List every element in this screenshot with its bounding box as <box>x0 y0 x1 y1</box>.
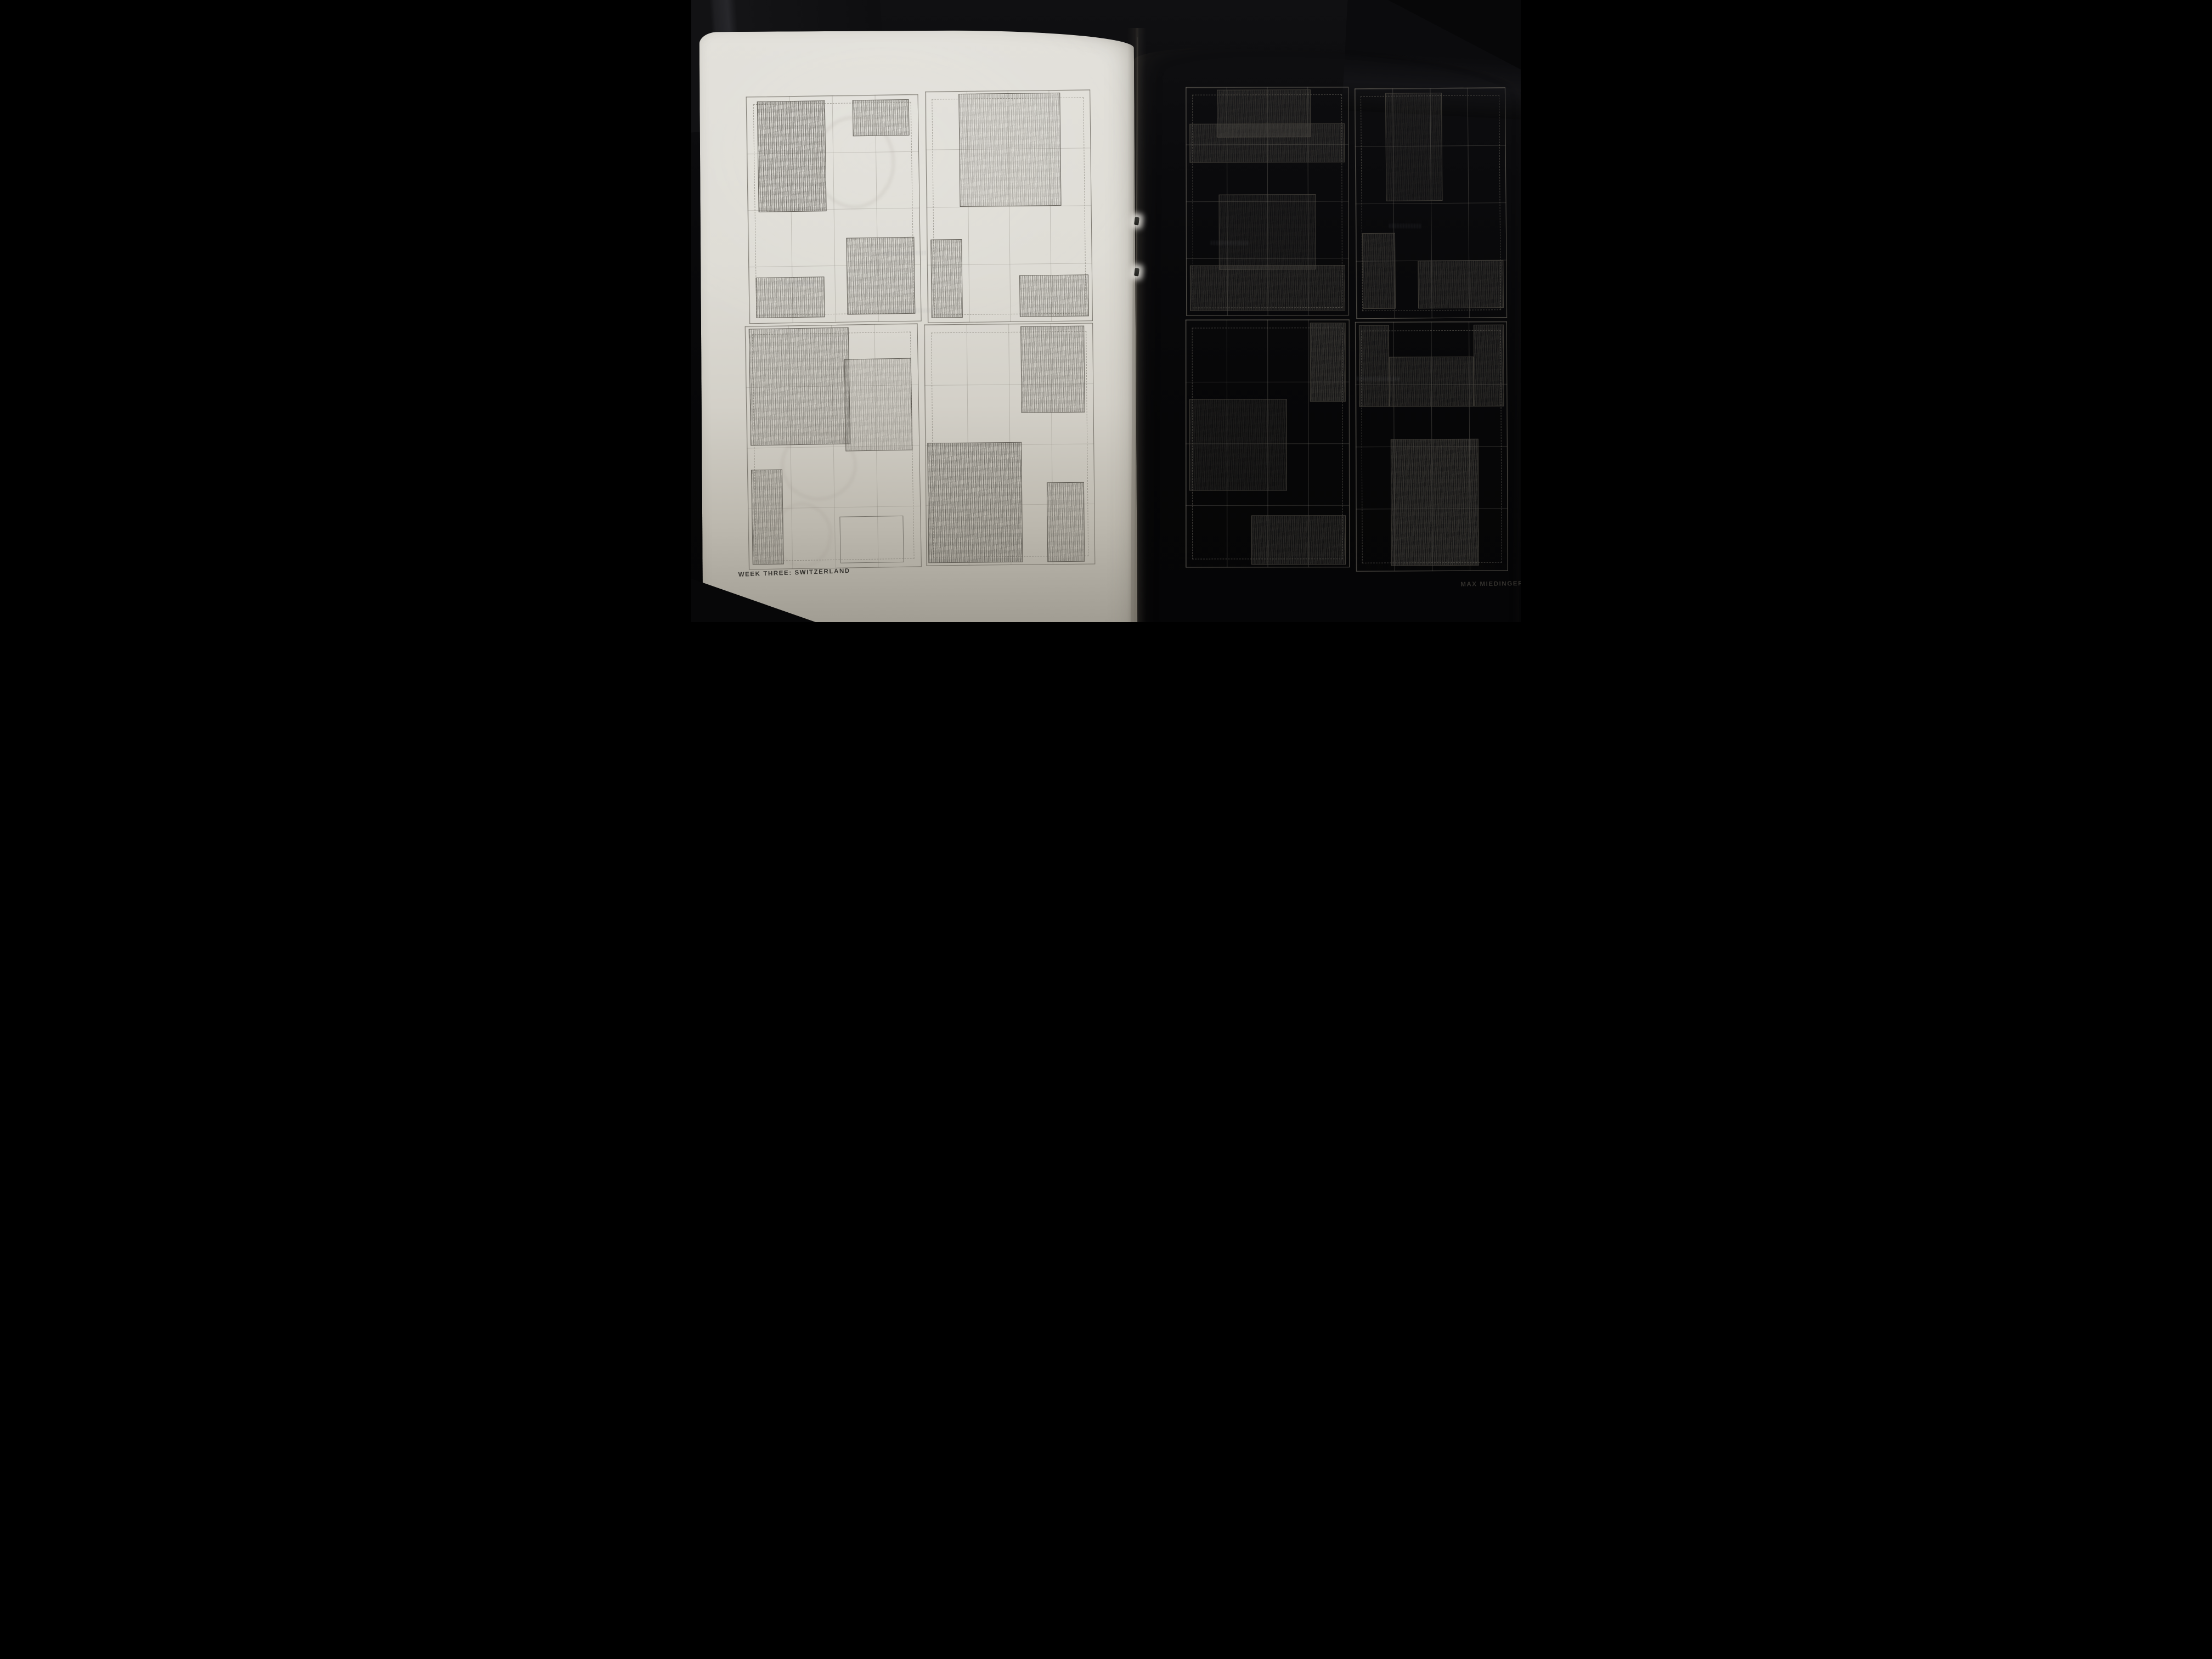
sketch-block <box>1474 325 1504 407</box>
sketch-block <box>756 276 825 318</box>
sketch-block <box>749 327 850 445</box>
sketch-block <box>1418 260 1504 309</box>
sketch-block <box>844 358 913 451</box>
pencil-scribble-fill <box>1359 326 1389 407</box>
pencil-scribble-fill <box>1419 261 1503 308</box>
pencil-scribble-fill <box>853 99 909 135</box>
sketch-block <box>928 442 1023 563</box>
pencil-scribble-fill <box>757 101 826 211</box>
footer-caption-author: MAX MIEDINGER <box>1460 580 1521 588</box>
pencil-scribble-fill <box>757 277 825 318</box>
pencil-scribble-fill <box>1392 439 1479 566</box>
sketch-block <box>846 236 916 314</box>
sketch-block <box>853 99 910 136</box>
pencil-scribble-fill <box>1220 195 1316 269</box>
sketch-block <box>757 100 827 212</box>
sketch-block <box>1389 357 1474 407</box>
sketch-block <box>752 469 784 564</box>
sketch-block <box>1385 93 1443 201</box>
sketch-block <box>1391 439 1480 566</box>
pencil-scribble-fill <box>750 328 850 444</box>
thumbnail-sketch-3 <box>745 323 922 570</box>
sketch-block <box>1047 482 1085 561</box>
pencil-scribble-fill <box>1252 516 1346 564</box>
sketch-block <box>1219 194 1316 269</box>
photo-stage: WEEK THREE: SWITZERLAND MAX MIEDINGER <box>691 0 1521 622</box>
pencil-scribble-fill <box>1474 325 1504 407</box>
sketch-block <box>1020 325 1085 413</box>
pencil-scribble-fill <box>959 93 1061 206</box>
pencil-scribble-fill <box>1390 358 1474 407</box>
sketch-block <box>1020 274 1089 317</box>
sketch-block <box>1189 399 1288 491</box>
pencil-scribble-fill <box>1190 266 1345 311</box>
pencil-scribble-fill <box>1048 482 1085 561</box>
sketch-block <box>1363 233 1396 309</box>
pencil-scribble-fill <box>752 470 783 563</box>
pencil-scribble-fill <box>1190 400 1287 490</box>
sketch-block <box>958 93 1062 207</box>
sketch-block <box>1190 123 1346 162</box>
pencil-scribble-fill <box>931 240 962 318</box>
thumbnail-sketch-2 <box>925 89 1093 323</box>
sketch-block <box>930 239 962 318</box>
pencil-scribble-fill <box>1190 124 1345 162</box>
sketch-block <box>1252 515 1347 565</box>
sketch-block <box>1190 265 1346 311</box>
thumbnail-sketch-7 <box>1186 320 1350 568</box>
thumbnail-sketch-5 <box>1186 87 1350 316</box>
thumbnail-sketch-4 <box>924 323 1096 566</box>
page-right: MAX MIEDINGER <box>1131 46 1521 622</box>
pencil-scribble-fill <box>845 358 912 450</box>
thumbnail-sketch-8 <box>1355 321 1508 572</box>
page-left: WEEK THREE: SWITZERLAND <box>699 29 1138 622</box>
pencil-scribble-fill <box>1386 93 1442 200</box>
pencil-scribble-fill <box>1311 323 1346 401</box>
pencil-scribble-fill <box>928 442 1023 562</box>
thumbnail-sketch-6 <box>1355 87 1508 319</box>
pencil-scribble-fill <box>1363 234 1396 308</box>
pencil-scribble-fill <box>847 237 915 314</box>
sketch-block <box>1359 325 1390 408</box>
sketch-block <box>840 515 904 562</box>
sketch-block <box>1310 323 1346 402</box>
pencil-scribble-fill <box>1021 326 1085 412</box>
thumbnail-sketch-1 <box>746 94 921 323</box>
pencil-scribble-fill <box>1020 275 1088 316</box>
